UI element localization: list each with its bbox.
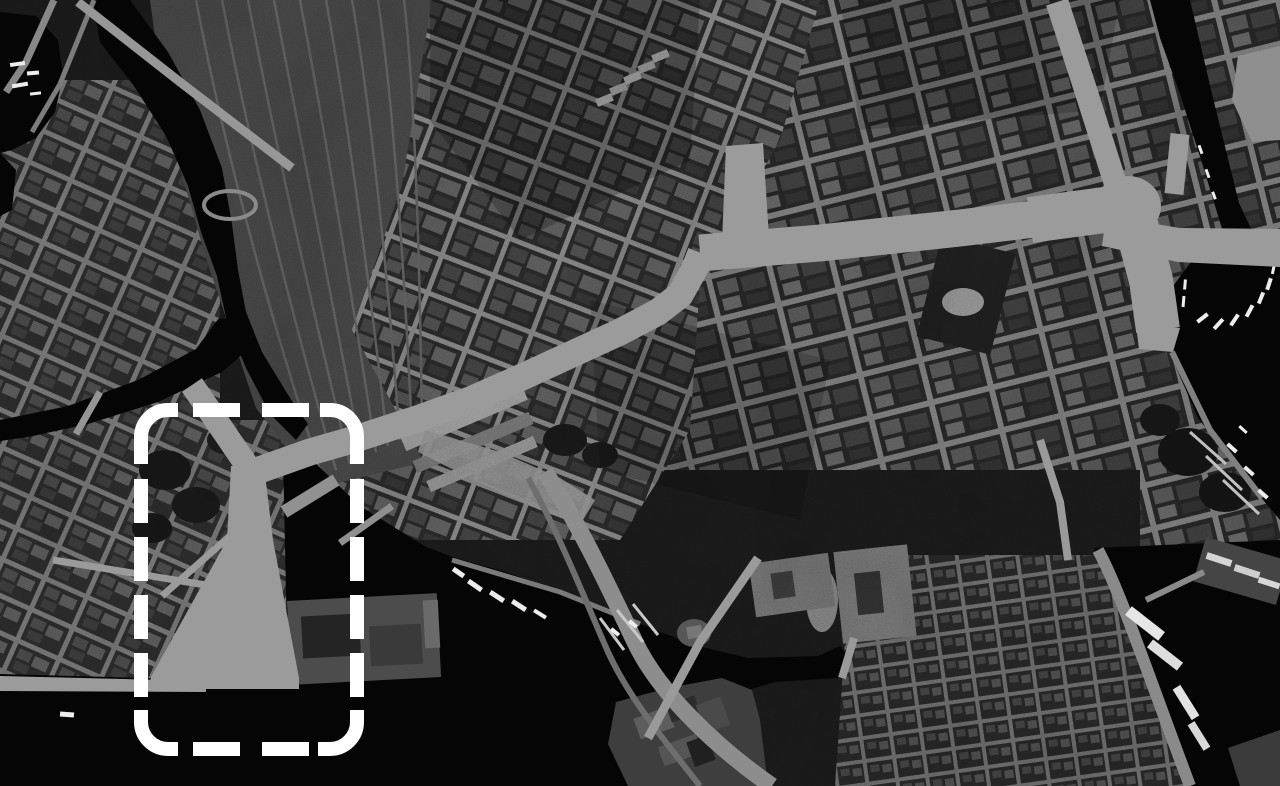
aerial-map: [0, 0, 1280, 786]
city-hall-garden: [369, 624, 423, 667]
boat: [60, 712, 74, 718]
tree-cluster: [172, 487, 220, 523]
tree-cluster: [1140, 404, 1180, 436]
route-stub-n: [1174, 134, 1180, 194]
tree-cluster: [1158, 428, 1218, 476]
park-oval: [942, 288, 984, 316]
aerial-map-screenshot: [0, 0, 1280, 786]
route-stub-north: [722, 143, 769, 242]
route-south-tip: [1136, 325, 1180, 352]
tree-cluster: [543, 424, 587, 456]
parliament-court: [770, 571, 795, 600]
city-hall-tower: [423, 600, 440, 649]
route-band-south: [1133, 213, 1158, 330]
palace-courtyard: [854, 571, 884, 615]
